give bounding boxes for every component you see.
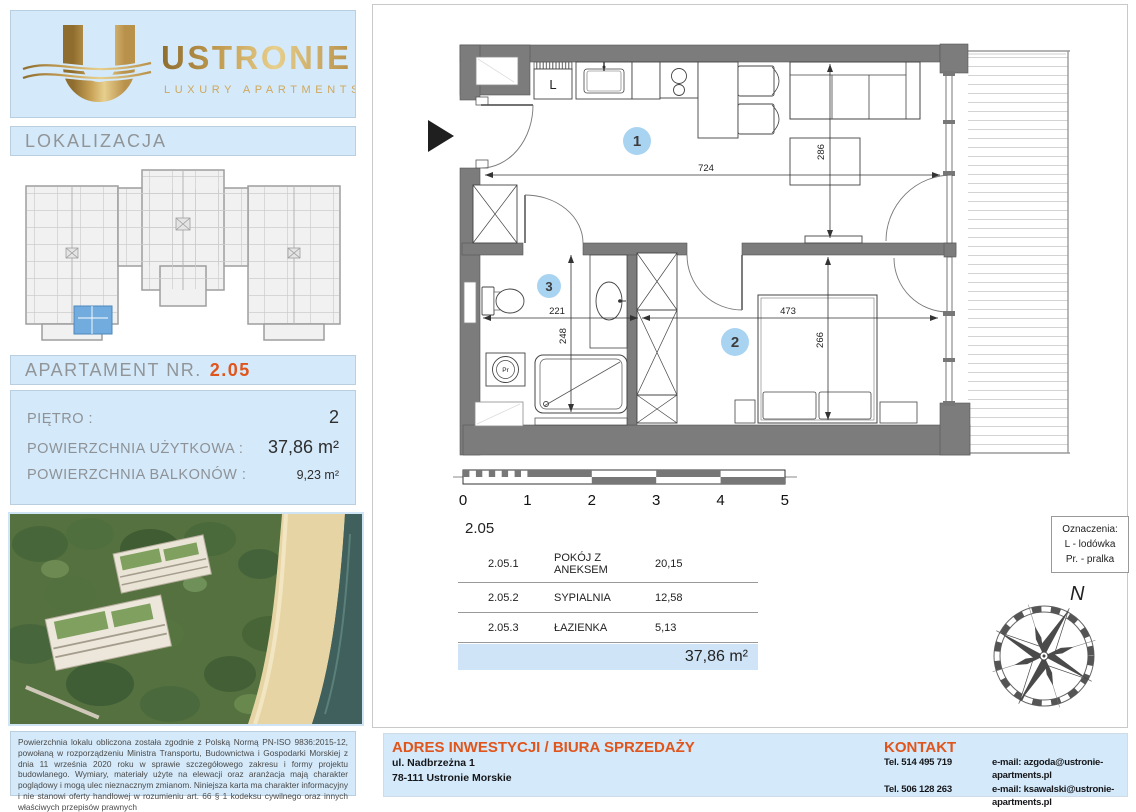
room-name: SYPIALNIA xyxy=(554,592,655,604)
legend-title: Oznaczenia: xyxy=(1052,522,1128,537)
logo-u-icon xyxy=(23,25,151,92)
table-row: 2.05.1 POKÓJ Z ANEKSEM 20,15 xyxy=(458,546,758,583)
brand-logo: USTRONIE LUXURY APARTMENTS xyxy=(11,11,355,117)
rooms-table: 2.05 2.05.1 POKÓJ Z ANEKSEM 20,15 2.05.2… xyxy=(458,520,758,670)
bedroom-furniture xyxy=(735,295,917,423)
room-no: 2.05.3 xyxy=(488,622,554,634)
balcony-area-value: 9,23 m² xyxy=(297,468,339,482)
lokalizacja-title: LOKALIZACJA xyxy=(25,131,167,152)
lokalizacja-header: LOKALIZACJA xyxy=(10,126,356,156)
building-photo xyxy=(8,512,364,726)
balcony-area-label: POWIERZCHNIA BALKONÓW : xyxy=(27,467,246,483)
bedroom-wardrobe xyxy=(637,253,677,423)
usable-area-value: 37,86 m² xyxy=(268,437,339,458)
svg-text:473: 473 xyxy=(780,306,796,317)
room-marker-1: 1 xyxy=(633,133,641,150)
svg-text:2: 2 xyxy=(588,492,596,509)
living-room-furniture xyxy=(790,62,920,243)
address-title: ADRES INWESTYCJI / BIURA SPRZEDAŻY xyxy=(392,739,695,756)
hall-wardrobe xyxy=(473,185,517,243)
usable-area-label: POWIERZCHNIA UŻYTKOWA : xyxy=(27,441,243,457)
svg-text:266: 266 xyxy=(815,332,826,348)
north-label: N xyxy=(1070,583,1085,605)
scale-bar-labels: 0 1 2 3 4 5 xyxy=(459,492,789,509)
address-line1: ul. Nadbrzeżna 1 xyxy=(392,756,695,771)
total-area: 37,86 m² xyxy=(458,644,758,670)
table-row: 2.05.2 SYPIALNIA 12,58 xyxy=(458,583,758,613)
room-name: POKÓJ Z ANEKSEM xyxy=(554,552,655,576)
floor-plan: L Pr xyxy=(420,40,1136,460)
unit-number: 2.05 xyxy=(458,520,758,537)
address-block: ADRES INWESTYCJI / BIURA SPRZEDAŻY ul. N… xyxy=(392,739,695,785)
apartment-header: APARTAMENT NR. 2.05 xyxy=(10,355,356,385)
logo-box: USTRONIE LUXURY APARTMENTS xyxy=(10,10,356,118)
scale-bar: 0 1 2 3 4 5 xyxy=(450,460,800,512)
svg-text:221: 221 xyxy=(549,306,565,317)
room-name: ŁAZIENKA xyxy=(554,622,655,634)
email: e-mail: azgoda@ustronie-apartments.pl xyxy=(992,756,1127,783)
highlighted-unit xyxy=(74,306,112,334)
address-line2: 78-111 Ustronie Morskie xyxy=(392,771,695,786)
bathroom-door xyxy=(525,195,583,243)
bedroom-door xyxy=(687,255,742,310)
svg-text:5: 5 xyxy=(781,492,789,509)
room-no: 2.05.1 xyxy=(488,558,554,570)
apartment-info-box: PIĘTRO : 2 POWIERZCHNIA UŻYTKOWA : 37,86… xyxy=(10,390,356,505)
balcony xyxy=(955,51,1070,453)
room-area: 5,13 xyxy=(655,622,758,634)
apartment-number: 2.05 xyxy=(210,360,251,381)
legend-item: Pr. - pralka xyxy=(1052,552,1128,567)
info-row-usable-area: POWIERZCHNIA UŻYTKOWA : 37,86 m² xyxy=(27,437,339,458)
svg-text:1: 1 xyxy=(523,492,531,509)
entry-door xyxy=(476,97,533,168)
phone: Tel. 506 128 263 xyxy=(884,783,986,810)
room-no: 2.05.2 xyxy=(488,592,554,604)
floor-value: 2 xyxy=(329,407,339,428)
svg-text:3: 3 xyxy=(652,492,660,509)
room-area: 20,15 xyxy=(655,558,758,570)
entry-arrow-icon xyxy=(428,120,454,152)
svg-text:0: 0 xyxy=(459,492,467,509)
phone: Tel. 514 495 719 xyxy=(884,756,986,783)
contact-title: KONTAKT xyxy=(884,739,1127,756)
brand-tagline: LUXURY APARTMENTS xyxy=(164,84,355,96)
legend-box: Oznaczenia: L - lodówka Pr. - pralka xyxy=(1051,516,1129,573)
contact-block: KONTAKT Tel. 514 495 719 e-mail: azgoda@… xyxy=(884,739,1127,809)
fridge-label: L xyxy=(549,77,556,92)
legal-disclaimer: Powierzchnia lokalu obliczona została zg… xyxy=(10,731,356,796)
svg-text:248: 248 xyxy=(558,328,569,344)
floor-label: PIĘTRO : xyxy=(27,411,93,427)
footer-bar: ADRES INWESTYCJI / BIURA SPRZEDAŻY ul. N… xyxy=(383,733,1128,797)
legal-text: Powierzchnia lokalu obliczona została zg… xyxy=(18,737,348,812)
svg-text:724: 724 xyxy=(698,163,714,174)
room-area: 12,58 xyxy=(655,592,758,604)
washer-label: Pr xyxy=(502,367,509,374)
info-row-floor: PIĘTRO : 2 xyxy=(27,407,339,428)
room-marker-3: 3 xyxy=(545,279,552,294)
legend-item: L - lodówka xyxy=(1052,537,1128,552)
building-overview xyxy=(12,160,354,352)
kitchen xyxy=(534,62,779,138)
compass-rose: N xyxy=(982,578,1112,718)
info-row-balcony-area: POWIERZCHNIA BALKONÓW : 9,23 m² xyxy=(27,467,339,483)
svg-text:4: 4 xyxy=(716,492,724,509)
room-marker-2: 2 xyxy=(731,334,739,351)
brand-name: USTRONIE xyxy=(161,39,352,76)
email: e-mail: ksawalski@ustronie-apartments.pl xyxy=(992,783,1127,810)
table-row: 2.05.3 ŁAZIENKA 5,13 xyxy=(458,613,758,643)
svg-text:286: 286 xyxy=(816,144,827,160)
windows xyxy=(886,71,955,406)
apartment-label: APARTAMENT NR. xyxy=(25,360,202,381)
